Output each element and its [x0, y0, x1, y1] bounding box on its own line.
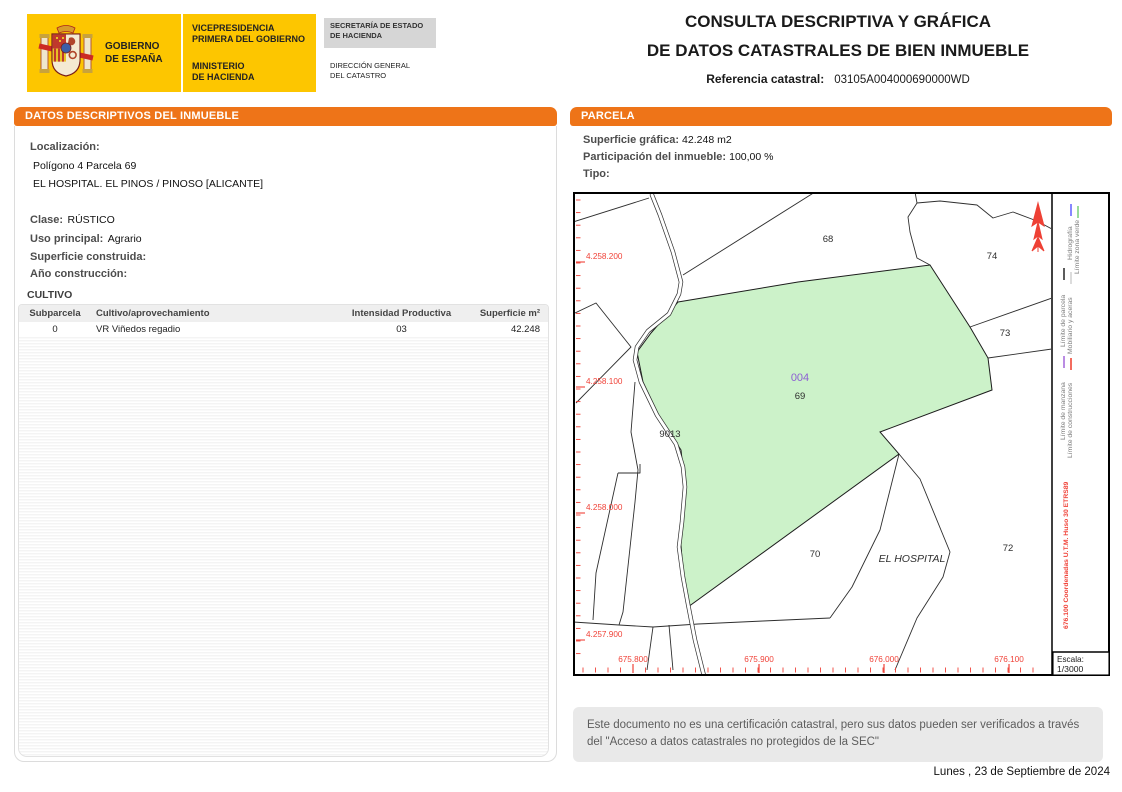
document-title: CONSULTA DESCRIPTIVA Y GRÁFICA DE DATOS …: [562, 12, 1114, 86]
anio-construccion-label: Año construcción:: [30, 268, 127, 280]
document-date: Lunes , 23 de Septiembre de 2024: [934, 766, 1110, 778]
vicepresidencia-label: VICEPRESIDENCIA PRIMERA DEL GOBIERNO: [192, 23, 305, 46]
clase-label: Clase:: [30, 214, 63, 226]
secretaria-estado-label: SECRETARÍA DE ESTADO DE HACIENDA: [324, 18, 436, 48]
clase-value: RÚSTICO: [67, 214, 114, 226]
datos-descriptivos-header: DATOS DESCRIPTIVOS DEL INMUEBLE: [14, 107, 557, 126]
clase-row: Clase: RÚSTICO: [30, 210, 115, 228]
y-coord-label: 4.258.000: [586, 503, 623, 512]
parcel-label-70: 70: [810, 549, 821, 560]
legend-label-3: Mobiliario y aceras: [1067, 297, 1074, 354]
ministerio-label: MINISTERIO DE HACIENDA: [192, 61, 255, 84]
direccion-general-catastro-label: DIRECCIÓN GENERAL DEL CATASTRO: [330, 61, 410, 81]
superficie-grafica-value: 42.248 m2: [682, 134, 732, 146]
col-subparcela: Subparcela: [19, 308, 91, 319]
cultivo-table: Subparcela Cultivo/aprovechamiento Inten…: [18, 304, 549, 757]
tipo-label: Tipo:: [583, 168, 610, 180]
gobierno-logo: GOBIERNO DE ESPAÑA VICEPRESIDENCIA PRIME…: [27, 14, 439, 92]
col-cultivo: Cultivo/aprovechamiento: [91, 308, 344, 319]
parcel-label-73: 73: [1000, 328, 1011, 339]
tipo-row: Tipo:: [583, 168, 610, 180]
x-coord-label: 676.100: [994, 655, 1024, 664]
cell-superficie: 42.248: [459, 324, 548, 335]
legend-label-1: Hidrografía: [1067, 226, 1074, 260]
parcel-label-74: 74: [987, 251, 998, 262]
escala-value: 1/3000: [1057, 664, 1084, 674]
localizacion-label: Localización:: [30, 141, 100, 153]
col-superficie: Superficie m²: [459, 308, 548, 319]
cell-intensidad: 03: [344, 324, 459, 335]
cultivo-table-header: Subparcela Cultivo/aprovechamiento Inten…: [19, 305, 548, 322]
logo-right-column: SECRETARÍA DE ESTADO DE HACIENDA DIRECCI…: [322, 14, 439, 92]
parcel-label-004: 004: [791, 372, 809, 384]
superficie-construida-label: Superficie construida:: [30, 251, 146, 263]
y-coord-label: 4.258.200: [586, 252, 623, 261]
cell-subparcela: 0: [19, 324, 91, 335]
logo-yellow-right: VICEPRESIDENCIA PRIMERA DEL GOBIERNO MIN…: [183, 14, 316, 92]
parcel-label-el-hospital: EL HOSPITAL: [879, 553, 946, 565]
localizacion-line1: Polígono 4 Parcela 69: [33, 160, 136, 172]
referencia-catastral: Referencia catastral:03105A004000690000W…: [562, 72, 1114, 86]
parcela-header: PARCELA: [570, 107, 1112, 126]
uso-label: Uso principal:: [30, 233, 103, 245]
x-coord-label: 676.000: [869, 655, 899, 664]
legend-label-0: Límite de parcela: [1060, 295, 1067, 347]
parcel-label-68: 68: [823, 234, 834, 245]
table-row: 0 VR Viñedos regadio 03 42.248: [19, 322, 548, 337]
disclaimer-note: Este documento no es una certificación c…: [573, 707, 1103, 762]
cultivo-title: CULTIVO: [27, 289, 72, 301]
localizacion-line2: EL HOSPITAL. EL PINOS / PINOSO [ALICANTE…: [33, 178, 263, 190]
y-coord-label: 4.257.900: [586, 630, 623, 639]
anio-construccion-row: Año construcción:: [30, 264, 127, 282]
legend-label-4: Límite de manzana: [1060, 382, 1067, 440]
title-line-1: CONSULTA DESCRIPTIVA Y GRÁFICA: [562, 12, 1114, 32]
legend-label-2: Límite zona verde: [1074, 220, 1081, 274]
spain-coat-of-arms-icon: [35, 24, 97, 87]
empty-table-rows: [19, 337, 548, 756]
referencia-catastral-value: 03105A004000690000WD: [834, 74, 970, 86]
cadastral-map: 4.258.2004.258.1004.258.0004.257.900675.…: [573, 192, 1110, 676]
superficie-grafica-row: Superficie gráfica: 42.248 m2: [583, 134, 732, 146]
parcel-label-69: 69: [795, 391, 806, 402]
col-intensidad: Intensidad Productiva: [344, 308, 459, 319]
parcel-label-72: 72: [1003, 543, 1014, 554]
superficie-grafica-label: Superficie gráfica:: [583, 134, 679, 146]
y-coord-label: 4.258.100: [586, 377, 623, 386]
x-coord-label: 675.900: [744, 655, 774, 664]
legend-label-5: Límite de construcciones: [1067, 382, 1074, 458]
cell-cultivo: VR Viñedos regadio: [91, 324, 344, 335]
escala-label: Escala:: [1057, 655, 1084, 664]
superficie-construida-row: Superficie construida:: [30, 247, 146, 265]
parcel-label-9013: 9013: [659, 429, 680, 440]
participacion-label: Participación del inmueble:: [583, 151, 726, 163]
utm-note: 676.100 Coordenadas U.T.M. Huso 30 ETRS8…: [1063, 481, 1070, 629]
referencia-catastral-label: Referencia catastral:: [706, 72, 824, 86]
title-line-2: DE DATOS CATASTRALES DE BIEN INMUEBLE: [562, 41, 1114, 61]
participacion-row: Participación del inmueble: 100,00 %: [583, 151, 773, 163]
participacion-value: 100,00 %: [729, 151, 773, 163]
gobierno-de-espana-label: GOBIERNO DE ESPAÑA: [105, 40, 163, 66]
x-coord-label: 675.800: [618, 655, 648, 664]
uso-row: Uso principal: Agrario: [30, 229, 142, 247]
logo-yellow-left: GOBIERNO DE ESPAÑA: [27, 14, 181, 92]
uso-value: Agrario: [108, 233, 142, 245]
